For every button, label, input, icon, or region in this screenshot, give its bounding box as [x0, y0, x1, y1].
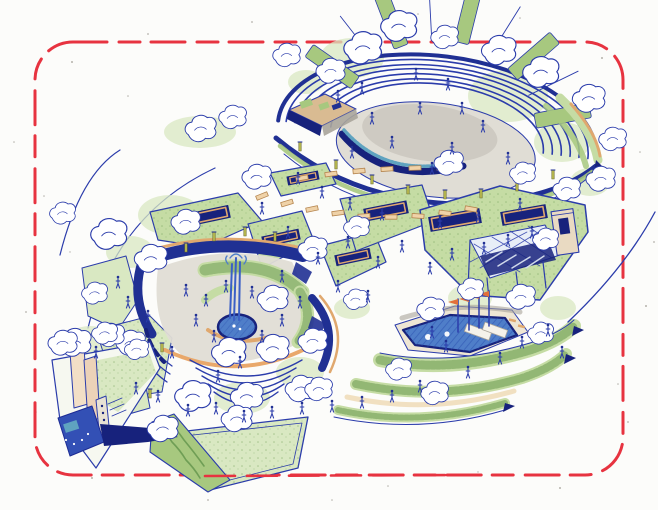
paper-speckle — [207, 499, 209, 501]
paper-speckle — [91, 477, 93, 479]
paper-speckle — [43, 195, 45, 197]
foliage-wash — [540, 296, 576, 320]
paper-speckle — [519, 17, 521, 19]
light-post — [212, 232, 216, 241]
paper-speckle — [69, 251, 70, 252]
light-post — [443, 190, 447, 199]
paper-speckle — [331, 499, 333, 501]
light-post — [406, 185, 410, 194]
light-post — [298, 142, 302, 151]
paper-speckle — [639, 151, 641, 153]
paper-speckle — [127, 95, 129, 97]
paper-speckle — [477, 471, 478, 472]
paper-speckle — [559, 487, 561, 489]
paper-speckle — [617, 383, 619, 385]
sketch-canvas — [0, 0, 658, 510]
paper-speckle — [251, 21, 253, 23]
paper-speckle — [147, 33, 149, 35]
bench — [439, 210, 451, 216]
light-post — [273, 232, 277, 241]
light-post — [370, 175, 374, 184]
light-post — [479, 189, 483, 198]
bench — [412, 213, 424, 218]
paper-speckle — [13, 141, 15, 143]
paper-speckle — [387, 485, 389, 487]
bench — [385, 215, 397, 219]
paper-speckle — [71, 61, 73, 63]
light-post — [334, 160, 338, 169]
paper-speckle — [25, 311, 27, 313]
paper-speckle — [627, 421, 629, 423]
paper-speckle — [653, 241, 655, 243]
bench — [409, 166, 421, 171]
paper-speckle — [417, 13, 419, 15]
paper-speckle — [601, 57, 603, 59]
paper-speckle — [645, 305, 647, 307]
light-post — [184, 243, 188, 252]
park-sketch-illustration — [0, 0, 658, 510]
light-post — [160, 343, 164, 352]
bench — [381, 166, 393, 171]
light-post — [243, 227, 247, 236]
bench — [353, 168, 365, 174]
light-post — [148, 389, 152, 398]
light-post — [551, 170, 555, 179]
